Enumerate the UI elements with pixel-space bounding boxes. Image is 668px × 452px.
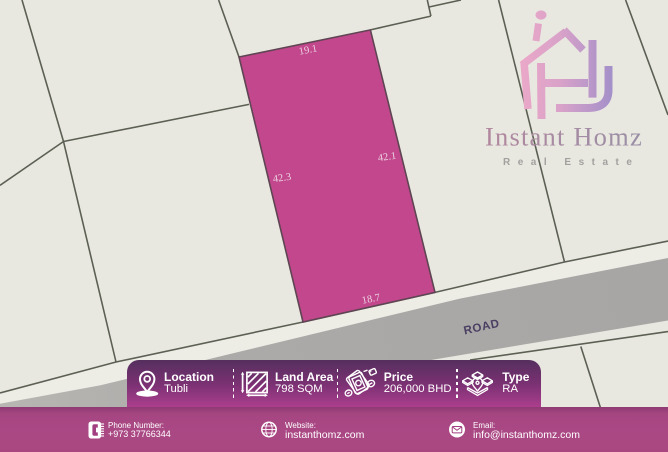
svg-text:Instant Homz: Instant Homz <box>485 122 643 152</box>
svg-text:Real Estate: Real Estate <box>503 157 639 168</box>
